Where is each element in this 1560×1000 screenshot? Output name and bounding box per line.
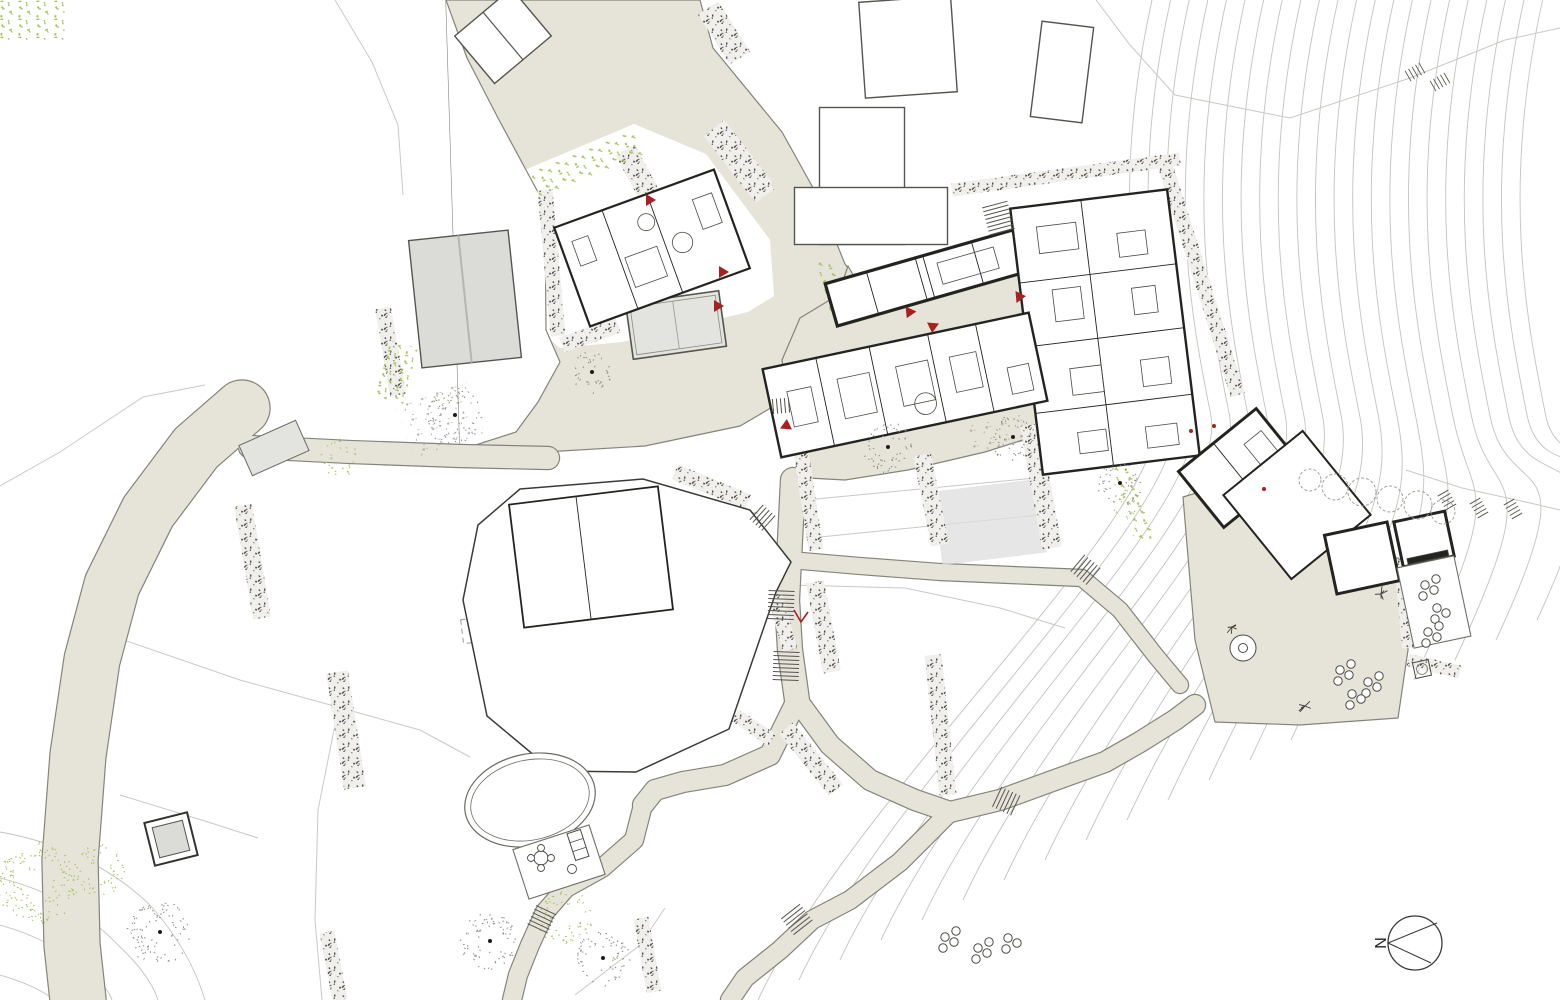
terrace-table — [972, 955, 980, 963]
garden-south-path — [790, 560, 1180, 685]
tree — [127, 903, 190, 962]
neighbor-building — [1030, 21, 1093, 123]
neighbor-building — [795, 188, 948, 245]
paved-garden-court — [933, 479, 1046, 565]
terrace-table — [1419, 592, 1427, 600]
site-plan-canvas: N — [0, 0, 1560, 1000]
hedge — [0, 0, 65, 40]
stair-flight — [982, 201, 1014, 235]
terrace-table — [1424, 628, 1432, 636]
terrace-table — [939, 944, 947, 952]
stone-wall — [933, 655, 948, 795]
terrace-table — [1348, 690, 1356, 698]
hedge — [374, 340, 418, 404]
building-terrace-house-a — [1324, 522, 1399, 594]
stone-wall — [952, 159, 1180, 190]
compass-needle-upper — [1388, 923, 1437, 943]
garden-table — [534, 851, 548, 865]
terrace-table — [1432, 575, 1440, 583]
terrace-table — [1004, 934, 1012, 942]
garden-chair — [538, 865, 545, 872]
terrace-table — [1002, 945, 1010, 953]
terrace-table — [1347, 660, 1355, 668]
terrace-table — [1430, 586, 1438, 594]
terrace-table — [1422, 639, 1430, 647]
terrace-table — [941, 933, 949, 941]
terrace-table — [1336, 666, 1344, 674]
terrace-table — [1357, 695, 1365, 703]
terrace-table — [1373, 683, 1381, 691]
building-east-house — [1010, 189, 1199, 474]
terrace-table — [1421, 581, 1429, 589]
terrace-table — [1334, 677, 1342, 685]
stone-wall — [735, 715, 772, 740]
north-compass: N — [1373, 916, 1442, 970]
stone-wall — [327, 932, 340, 1000]
garden-chair — [548, 855, 555, 862]
terrace-table — [1013, 939, 1021, 947]
red-survey-dot — [1189, 429, 1193, 433]
tree — [460, 914, 517, 970]
building-field-shed — [509, 486, 673, 627]
tree-canopy — [1404, 491, 1432, 519]
terrace-table — [985, 938, 993, 946]
red-survey-dot — [1262, 487, 1266, 491]
terrace-table — [1433, 633, 1441, 641]
terrace-table — [1346, 701, 1354, 709]
small-chapel — [144, 812, 197, 865]
terrace-table — [952, 927, 960, 935]
terrace-table — [974, 944, 982, 952]
terrace-table — [983, 949, 991, 957]
left-lane — [70, 408, 242, 1000]
slope-hatches — [1405, 63, 1522, 519]
stone-wall — [243, 505, 262, 618]
red-survey-dot — [1212, 424, 1216, 428]
stair-path — [787, 480, 797, 700]
terrace-table — [1433, 604, 1441, 612]
terrace-table — [1442, 609, 1450, 617]
stone-wall — [337, 672, 355, 788]
terrace-table — [1364, 678, 1372, 686]
chapel-inner — [152, 820, 190, 858]
garden-chair — [538, 845, 545, 852]
terrace-table — [1435, 622, 1443, 630]
tree-canopy — [1377, 486, 1403, 512]
neighbor-building — [859, 0, 957, 98]
terrace-table — [950, 938, 958, 946]
stone-wall — [922, 455, 940, 545]
compass-label: N — [1373, 937, 1390, 949]
south-fork — [730, 812, 950, 1000]
stone-wall — [815, 582, 832, 672]
terrace-table — [1345, 671, 1353, 679]
well-outer — [1230, 635, 1256, 661]
terrace-table — [1375, 672, 1383, 680]
garden-chair — [528, 855, 535, 862]
tree — [577, 932, 631, 987]
barn — [409, 230, 522, 368]
site-plan-stage: N — [0, 0, 1560, 1000]
stone-wall — [641, 918, 654, 992]
terrace-climb — [950, 705, 1195, 812]
